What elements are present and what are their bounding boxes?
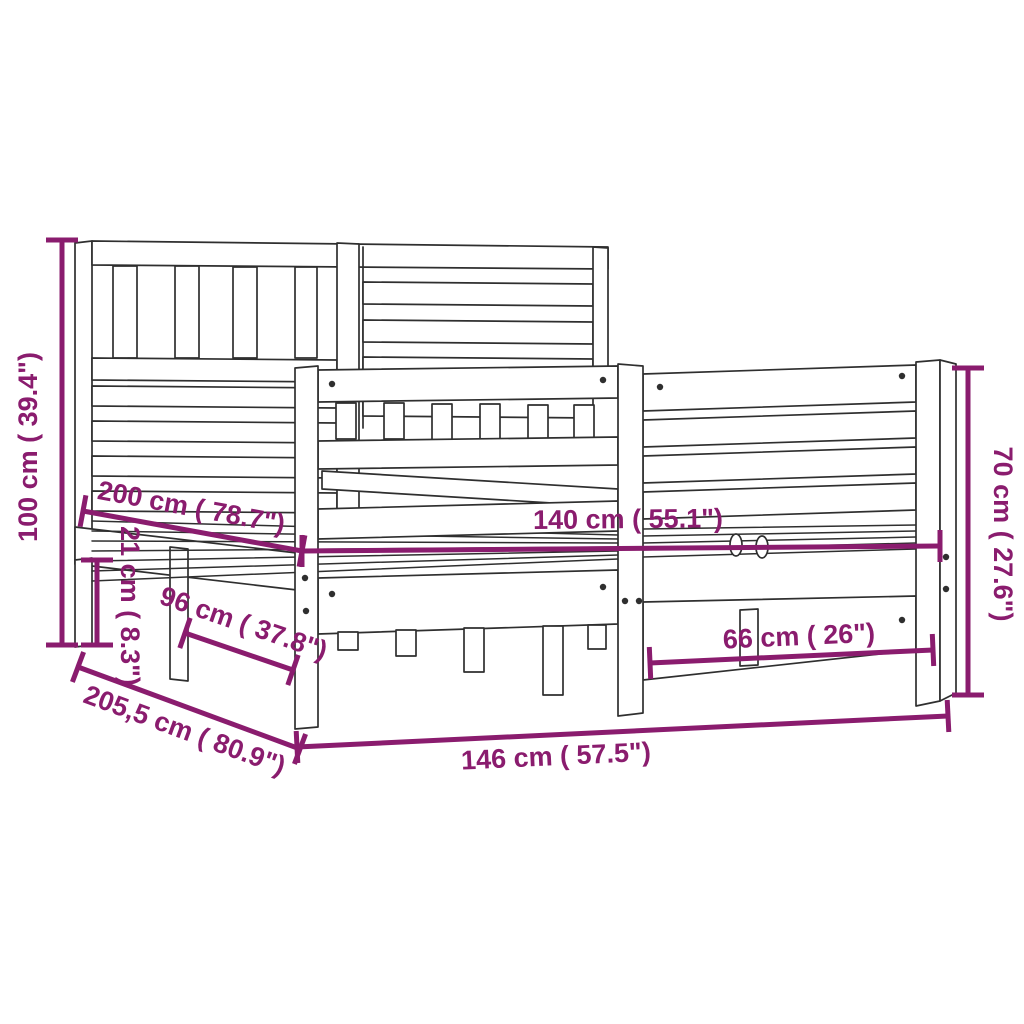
guard-rail-slat	[574, 405, 594, 441]
product-dimension-diagram: 100 cm ( 39.4") 200 cm ( 78.7") 21 cm ( …	[0, 0, 1024, 1024]
guard-rail-slat	[432, 404, 452, 440]
bed-leg	[396, 630, 416, 656]
guard-rail-mid	[318, 437, 618, 469]
bed-leg	[588, 625, 606, 649]
headboard-slat	[175, 266, 199, 358]
headboard-slat	[113, 266, 137, 358]
label-headboard-height: 100 cm ( 39.4")	[13, 352, 43, 542]
guard-rail-slat	[336, 403, 356, 439]
slat-end	[730, 534, 742, 556]
guard-rail-top	[318, 366, 618, 402]
bed-leg	[75, 558, 92, 647]
panel-board	[643, 411, 916, 447]
label-footboard-height: 70 cm ( 27.6")	[988, 447, 1018, 622]
panel-right-post	[916, 360, 940, 706]
panel-board	[643, 365, 916, 411]
label-mattress-width: 140 cm ( 55.1")	[533, 503, 723, 535]
bed-leg	[543, 626, 563, 695]
headboard-slat	[233, 267, 257, 358]
headboard-right-post	[593, 247, 608, 378]
bed-leg	[464, 628, 484, 672]
bed-leg	[338, 632, 358, 650]
dimension-headboard-height	[46, 240, 78, 645]
guard-rail-bottom	[318, 570, 618, 634]
headboard-slat	[295, 267, 317, 358]
label-floor-clearance: 21 cm ( 8.3")	[115, 526, 145, 686]
panel-left-post	[618, 364, 643, 716]
headboard-board	[363, 320, 593, 344]
guard-rail-slat	[384, 403, 404, 439]
bed-frame-diagram-canvas: 100 cm ( 39.4") 200 cm ( 78.7") 21 cm ( …	[0, 0, 1024, 1024]
guard-rail-front-post	[295, 366, 318, 729]
guard-rail-slat	[528, 405, 548, 441]
label-total-length: 205,5 cm ( 80.9")	[80, 679, 290, 781]
guard-rail-slat	[480, 404, 500, 440]
panel-board	[643, 447, 916, 483]
label-total-width: 146 cm ( 57.5")	[460, 737, 651, 776]
headboard-board	[363, 282, 593, 306]
